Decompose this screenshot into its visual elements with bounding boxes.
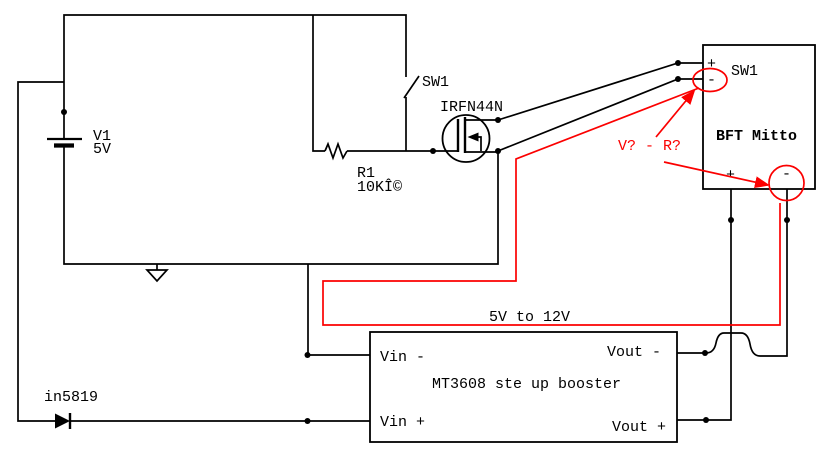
resistor-zigzag: [325, 144, 347, 158]
junction-dot: [430, 148, 436, 154]
receiver-switch-label: SW1: [731, 63, 758, 80]
wire-vout-plus-to-receiver: [677, 189, 731, 420]
ground-triangle-icon: [147, 270, 167, 281]
receiver-top-minus-label: -: [707, 72, 716, 89]
mosfet-arrow-icon: [468, 133, 479, 142]
junction-dot: [675, 60, 681, 66]
receiver-box: + - SW1 BFT Mitto + -: [703, 45, 815, 189]
annotation-question-label: V? - R?: [618, 138, 681, 155]
wire-to-vin-minus: [308, 264, 370, 355]
junction-dot: [61, 109, 67, 115]
junction-dot: [305, 418, 311, 424]
wire-bottom-rail: [64, 146, 498, 264]
ground-symbol: [147, 264, 167, 281]
wire-gate-branch: [313, 15, 325, 151]
battery-v1: V1 5V: [47, 128, 111, 158]
receiver-outline: [703, 45, 815, 189]
junction-dot: [495, 148, 501, 154]
wire-left-branch: [18, 82, 64, 421]
booster-box: Vin - Vout - MT3608 ste up booster Vin +…: [370, 332, 677, 442]
diode-in5819: in5819: [44, 389, 98, 429]
mosfet-ref-label: IRFN44N: [440, 99, 503, 116]
schematic-canvas: V1 5V SW1 R1 10KÎ© IRFN44N in5819 +: [0, 0, 828, 459]
switch-blade: [404, 76, 419, 98]
junction-dot: [495, 117, 501, 123]
booster-vin-plus-label: Vin +: [380, 414, 425, 431]
booster-vout-plus-label: Vout +: [612, 419, 666, 436]
junction-dot: [703, 417, 709, 423]
junction-dot: [305, 352, 311, 358]
receiver-bottom-minus-label: -: [782, 166, 791, 183]
wire-top-rail: [64, 15, 406, 139]
junction-dot: [702, 350, 708, 356]
battery-value-label: 5V: [93, 141, 111, 158]
junction-dot: [675, 76, 681, 82]
resistor-value-label: 10KÎ©: [357, 178, 402, 196]
booster-vin-minus-label: Vin -: [380, 349, 425, 366]
switch-ref-label: SW1: [422, 74, 449, 91]
booster-vout-minus-label: Vout -: [607, 344, 661, 361]
receiver-title: BFT Mitto: [716, 128, 797, 145]
mosfet-irfn44n: IRFN44N: [440, 99, 503, 162]
annotation-conversion-label: 5V to 12V: [489, 309, 570, 326]
wire-drain-to-receiver-plus: [498, 63, 703, 120]
junction-dot: [784, 217, 790, 223]
diode-ref-label: in5819: [44, 389, 98, 406]
circuit-schematic: V1 5V SW1 R1 10KÎ© IRFN44N in5819 +: [0, 0, 828, 459]
wire-vout-minus-to-receiver-with-hop: [677, 189, 787, 356]
diode-triangle-icon: [55, 414, 70, 429]
junction-dot: [728, 217, 734, 223]
booster-title: MT3608 ste up booster: [432, 376, 621, 393]
receiver-top-plus-label: +: [707, 56, 716, 73]
